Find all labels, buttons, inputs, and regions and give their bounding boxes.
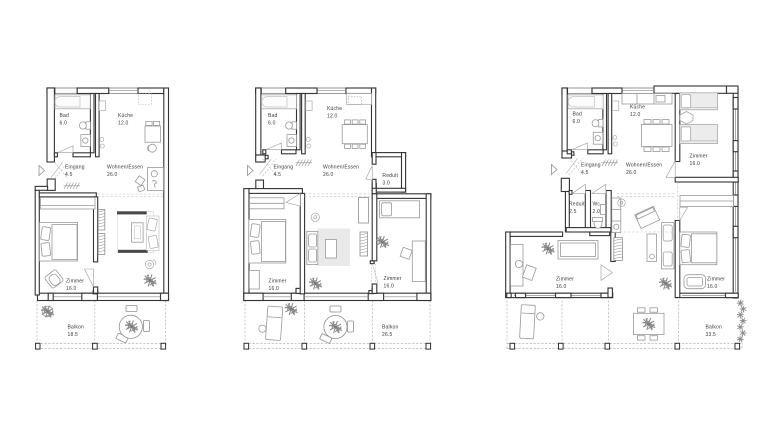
svg-text:16.0: 16.0 <box>690 161 701 167</box>
svg-text:Zimmer: Zimmer <box>269 279 287 285</box>
svg-text:Zimmer: Zimmer <box>690 154 708 160</box>
svg-text:16.0: 16.0 <box>66 286 77 292</box>
svg-text:33.5: 33.5 <box>706 332 717 338</box>
svg-text:Zimmer: Zimmer <box>384 276 402 282</box>
svg-text:16.0: 16.0 <box>384 284 395 290</box>
svg-text:6.0: 6.0 <box>60 121 68 127</box>
svg-text:Bad: Bad <box>60 113 70 119</box>
svg-text:Wohnen/Essen: Wohnen/Essen <box>323 165 359 171</box>
svg-text:2.5: 2.5 <box>569 209 577 215</box>
svg-text:Küche: Küche <box>630 105 645 111</box>
svg-text:Küche: Küche <box>118 113 133 119</box>
svg-text:Wc: Wc <box>593 202 601 208</box>
svg-text:Eingang: Eingang <box>65 165 85 171</box>
svg-text:16.0: 16.0 <box>269 286 280 292</box>
svg-text:4.5: 4.5 <box>274 172 282 178</box>
svg-text:26.0: 26.0 <box>626 170 637 176</box>
svg-text:6.0: 6.0 <box>573 119 581 125</box>
svg-text:26.0: 26.0 <box>323 172 334 178</box>
svg-text:12.0: 12.0 <box>118 121 129 127</box>
svg-text:18.5: 18.5 <box>68 332 79 338</box>
svg-text:Eingang: Eingang <box>581 163 601 169</box>
svg-text:6.0: 6.0 <box>268 121 276 127</box>
svg-text:16.0: 16.0 <box>556 284 567 290</box>
svg-text:Reduit: Reduit <box>569 202 585 208</box>
svg-text:Wohnen/Essen: Wohnen/Essen <box>107 165 143 171</box>
svg-text:Reduit: Reduit <box>382 173 398 179</box>
svg-text:Zimmer: Zimmer <box>556 277 574 283</box>
svg-text:Bad: Bad <box>573 112 583 118</box>
svg-text:12.0: 12.0 <box>327 114 338 120</box>
svg-text:2.0: 2.0 <box>593 209 601 215</box>
svg-text:Balkon: Balkon <box>382 325 399 331</box>
svg-text:Zimmer: Zimmer <box>707 277 725 283</box>
svg-text:Balkon: Balkon <box>68 325 85 331</box>
svg-text:4.5: 4.5 <box>65 172 73 178</box>
svg-text:12.0: 12.0 <box>630 112 641 118</box>
svg-text:Bad: Bad <box>268 113 278 119</box>
svg-text:Zimmer: Zimmer <box>66 279 84 285</box>
svg-text:26.0: 26.0 <box>107 172 118 178</box>
svg-text:Wohnen/Essen: Wohnen/Essen <box>626 163 662 169</box>
svg-text:4.5: 4.5 <box>581 170 589 176</box>
svg-text:26.5: 26.5 <box>382 332 393 338</box>
svg-text:Küche: Küche <box>327 106 342 112</box>
svg-text:3.0: 3.0 <box>382 181 390 187</box>
svg-text:Balkon: Balkon <box>706 325 723 331</box>
svg-text:16.0: 16.0 <box>707 284 718 290</box>
svg-text:Eingang: Eingang <box>274 165 294 171</box>
